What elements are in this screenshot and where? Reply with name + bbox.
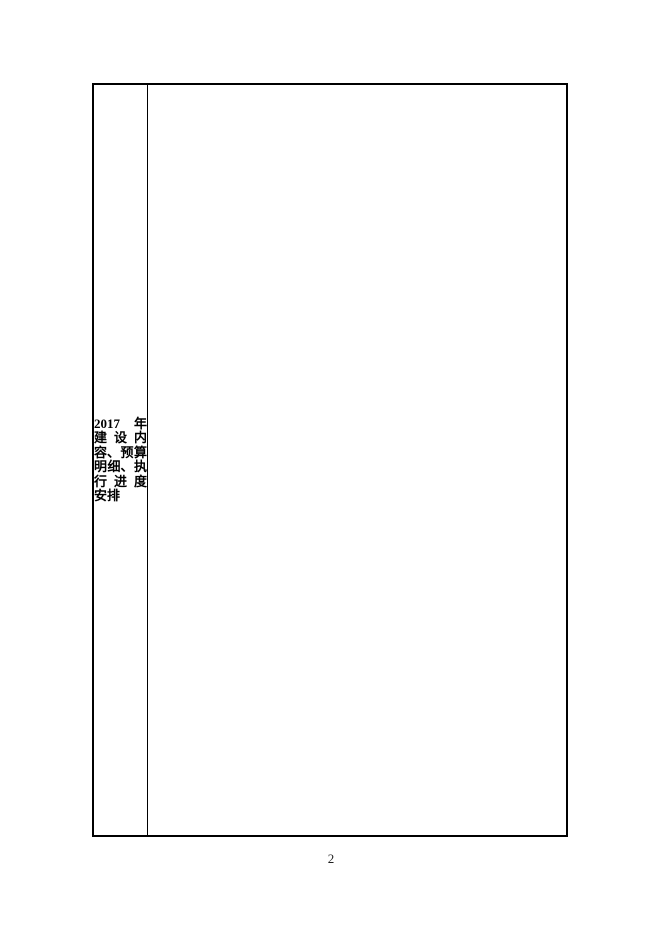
label-segment: 安排 <box>94 489 120 504</box>
label-segment: 容、 <box>94 446 120 461</box>
table-label-cell: 2017 年 建 设 内 容、 预 算 明 细、 执 行 进 度 <box>94 85 148 835</box>
label-segment: 细、 <box>107 460 133 475</box>
row-label: 2017 年 建 设 内 容、 预 算 明 细、 执 行 进 度 <box>94 417 147 504</box>
label-segment: 建 <box>94 431 107 446</box>
label-segment: 进 <box>114 475 127 490</box>
label-line: 行 进 度 <box>94 475 147 490</box>
label-line: 明 细、 执 <box>94 460 147 475</box>
label-segment: 执 <box>134 460 147 475</box>
label-segment: 度 <box>134 475 147 490</box>
table-content-cell <box>148 85 566 835</box>
label-segment: 年 <box>134 417 147 432</box>
page-number: 2 <box>0 852 662 866</box>
label-segment: 设 <box>114 431 127 446</box>
label-line: 容、 预 算 <box>94 446 147 461</box>
schedule-table: 2017 年 建 设 内 容、 预 算 明 细、 执 行 进 度 <box>92 83 568 837</box>
label-line: 建 设 内 <box>94 431 147 446</box>
label-segment: 明 <box>94 460 107 475</box>
label-segment: 算 <box>134 446 147 461</box>
label-segment: 行 <box>94 475 107 490</box>
label-segment: 2017 <box>94 417 120 432</box>
label-segment: 预 <box>120 446 133 461</box>
label-line: 安排 <box>94 489 147 504</box>
label-segment: 内 <box>134 431 147 446</box>
label-line: 2017 年 <box>94 417 147 432</box>
